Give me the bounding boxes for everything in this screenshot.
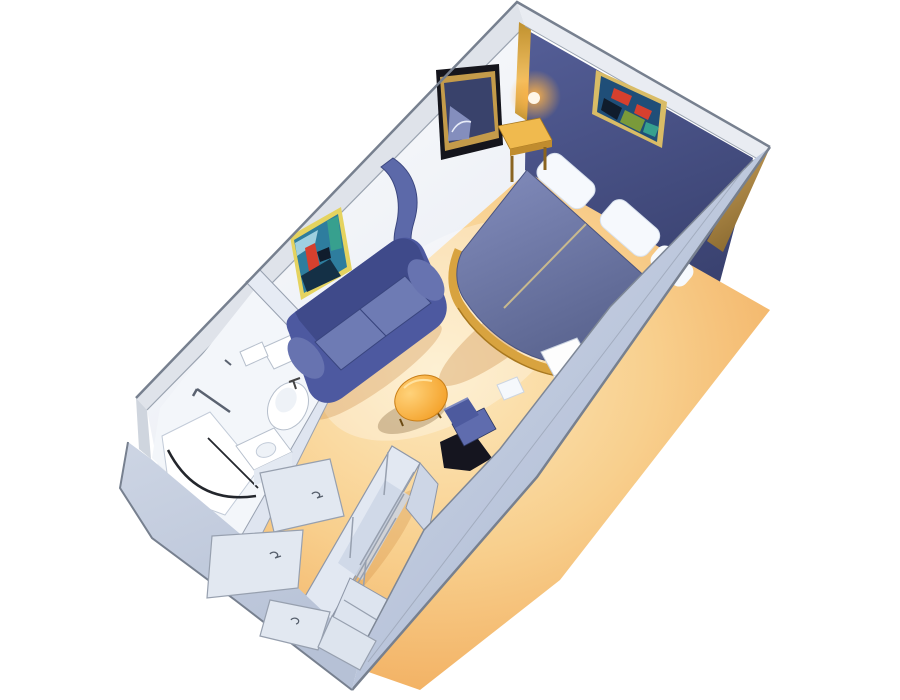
tv (436, 64, 503, 160)
mirror-panel (207, 530, 303, 598)
wall-sconce-lamp (509, 70, 561, 122)
floorplan-canvas (0, 0, 900, 700)
lamp-shade (528, 92, 540, 104)
stateroom-floorplan-image (0, 0, 900, 700)
